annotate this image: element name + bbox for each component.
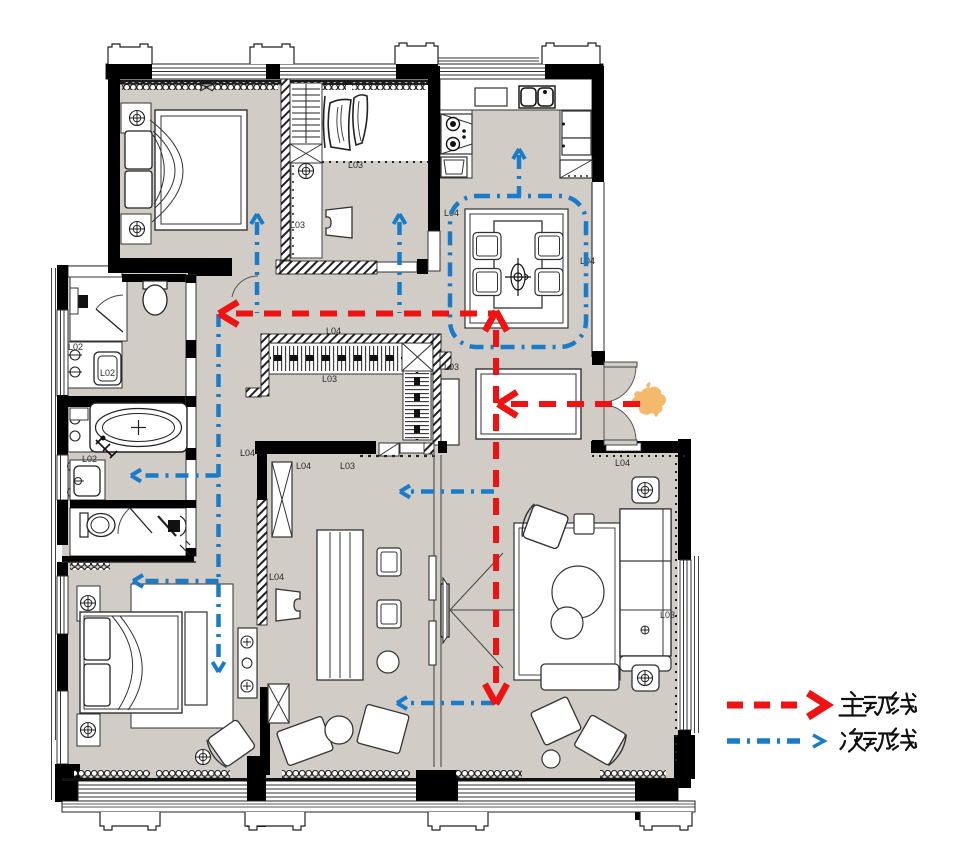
- svg-text:L02: L02: [68, 342, 83, 352]
- svg-text:L03: L03: [340, 461, 355, 471]
- svg-text:L03: L03: [660, 610, 675, 620]
- svg-text:L03: L03: [290, 220, 305, 230]
- svg-text:L03: L03: [444, 362, 459, 372]
- svg-text:L04: L04: [326, 326, 341, 336]
- svg-text:L02: L02: [100, 368, 115, 378]
- svg-text:L04: L04: [240, 448, 255, 458]
- svg-text:L04: L04: [615, 458, 630, 468]
- svg-text:L03: L03: [348, 160, 363, 170]
- svg-text:L03: L03: [322, 374, 337, 384]
- svg-text:L04: L04: [269, 572, 284, 582]
- svg-text:L04: L04: [296, 461, 311, 471]
- svg-text:L02: L02: [82, 454, 97, 464]
